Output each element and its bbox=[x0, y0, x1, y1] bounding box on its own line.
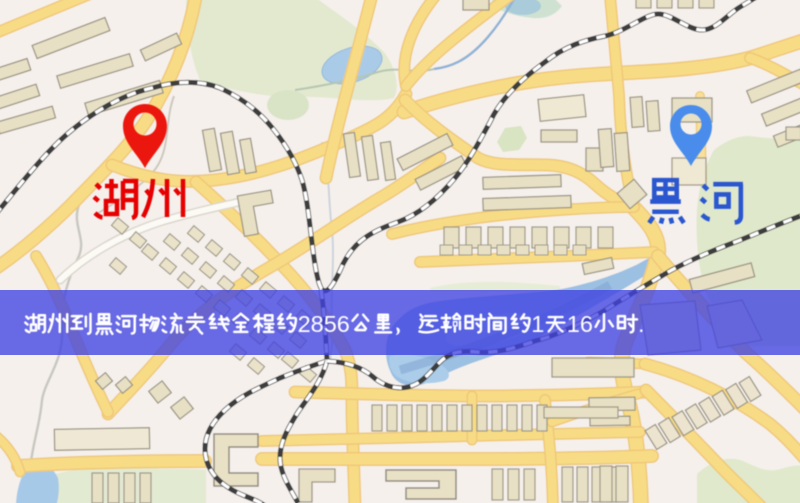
svg-text:16: 16 bbox=[567, 311, 593, 337]
svg-text:.: . bbox=[638, 311, 645, 337]
svg-text:2856: 2856 bbox=[298, 311, 350, 337]
svg-text:1: 1 bbox=[531, 311, 544, 337]
